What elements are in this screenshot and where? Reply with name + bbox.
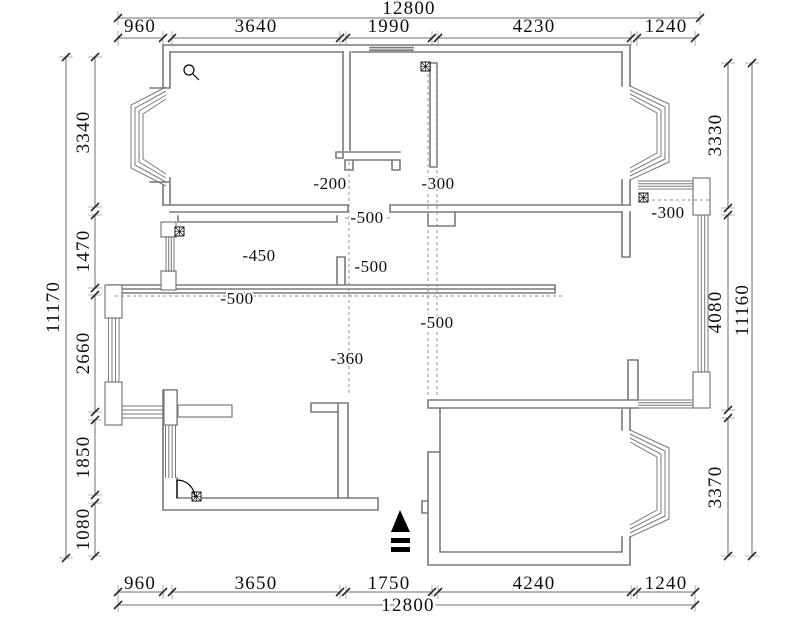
wall-outer-right-top	[622, 45, 630, 205]
wall-bottomright-room	[422, 408, 630, 565]
entrance-arrow-icon	[391, 510, 410, 552]
floor-drain-icon	[175, 227, 184, 236]
dim-label: 960	[124, 573, 156, 594]
dim-label: 3340	[73, 111, 94, 154]
wall-partition-living-small	[336, 52, 350, 158]
wall-stub	[178, 405, 232, 417]
dim-label-total-left: 11170	[43, 281, 64, 333]
dim-label: 1240	[645, 573, 688, 594]
dimension-chain-right: 3330 4080 3370 11160	[705, 59, 759, 560]
level-label: -500	[420, 313, 453, 332]
bay-window-bottom-right	[630, 430, 669, 537]
level-label: -300	[651, 203, 684, 222]
floor-drain-icon	[192, 492, 201, 501]
window-left-horizontal	[122, 406, 163, 418]
column	[105, 382, 122, 425]
window-bottomleft-vertical	[166, 425, 176, 478]
dim-label: 1080	[73, 508, 94, 551]
bay-window-left	[131, 87, 166, 186]
dim-label: 1470	[73, 230, 94, 273]
floor-plan-walls	[108, 45, 638, 565]
column	[693, 372, 710, 408]
window-balcony-left	[166, 236, 174, 272]
bay-window-top-right	[630, 86, 669, 180]
dim-label: 3370	[705, 466, 726, 509]
level-label: -500	[220, 289, 253, 308]
level-label: -200	[313, 174, 346, 193]
dimension-chain-top: 12800 960 3640 1990 4230 1240	[114, 0, 704, 46]
dim-label: 1850	[73, 436, 94, 479]
level-annotations: -200 -300 -500 -500 -450 -500 -300 -360 …	[220, 174, 684, 368]
column	[693, 178, 710, 215]
wall-center-vertical	[311, 403, 348, 498]
wall-right-mid	[622, 212, 630, 257]
wall-partition-small-right	[430, 63, 437, 167]
column	[161, 222, 176, 237]
dim-label-total-right: 11160	[732, 284, 753, 336]
dim-label: 4240	[513, 573, 556, 594]
level-label: -500	[350, 208, 383, 227]
dim-label: 2660	[73, 332, 94, 375]
dim-label: 1990	[368, 16, 411, 37]
floor-drain-icon	[639, 193, 648, 202]
columns	[105, 178, 710, 425]
window-right-balcony-top	[638, 181, 693, 189]
dimension-chain-left: 11170 3340 1470 2660 1850 1080	[43, 53, 102, 562]
dim-label-total-bottom: 12800	[381, 595, 435, 616]
dim-label: 4230	[513, 16, 556, 37]
dim-label: 3640	[235, 16, 278, 37]
wall-smallroom-bottom	[345, 152, 400, 170]
bay-windows	[131, 86, 669, 537]
level-label: -360	[330, 349, 363, 368]
dim-label: 3650	[235, 573, 278, 594]
level-label: -300	[421, 174, 454, 193]
floor-plan-drawing: 12800 960 3640 1990 4230 1240 960 3650 1…	[0, 0, 800, 619]
dim-label: 3330	[705, 114, 726, 157]
windows	[109, 181, 709, 478]
dim-label: 960	[124, 16, 156, 37]
column	[164, 390, 177, 425]
wall-main-middle	[163, 205, 630, 226]
column	[161, 271, 176, 290]
floor-drain-icon	[421, 62, 430, 71]
level-label: -500	[354, 257, 387, 276]
floor-plan-canvas: 12800 960 3640 1990 4230 1240 960 3650 1…	[0, 0, 800, 619]
wall-middle-horizontal-right	[428, 360, 638, 408]
dashed-reference-lines	[115, 68, 710, 398]
dimension-chain-bottom: 960 3650 1750 4240 1240 12800	[114, 573, 699, 616]
dim-label: 1750	[368, 573, 411, 594]
window-left-lower	[109, 318, 120, 382]
level-label: -450	[242, 246, 275, 265]
wall-outer-left-top	[150, 45, 170, 205]
column	[105, 285, 122, 318]
wall-outer-top	[163, 45, 630, 52]
window-right-balcony-bottom	[638, 400, 693, 408]
magnifier-icon	[184, 65, 199, 80]
dim-label: 1240	[645, 16, 688, 37]
